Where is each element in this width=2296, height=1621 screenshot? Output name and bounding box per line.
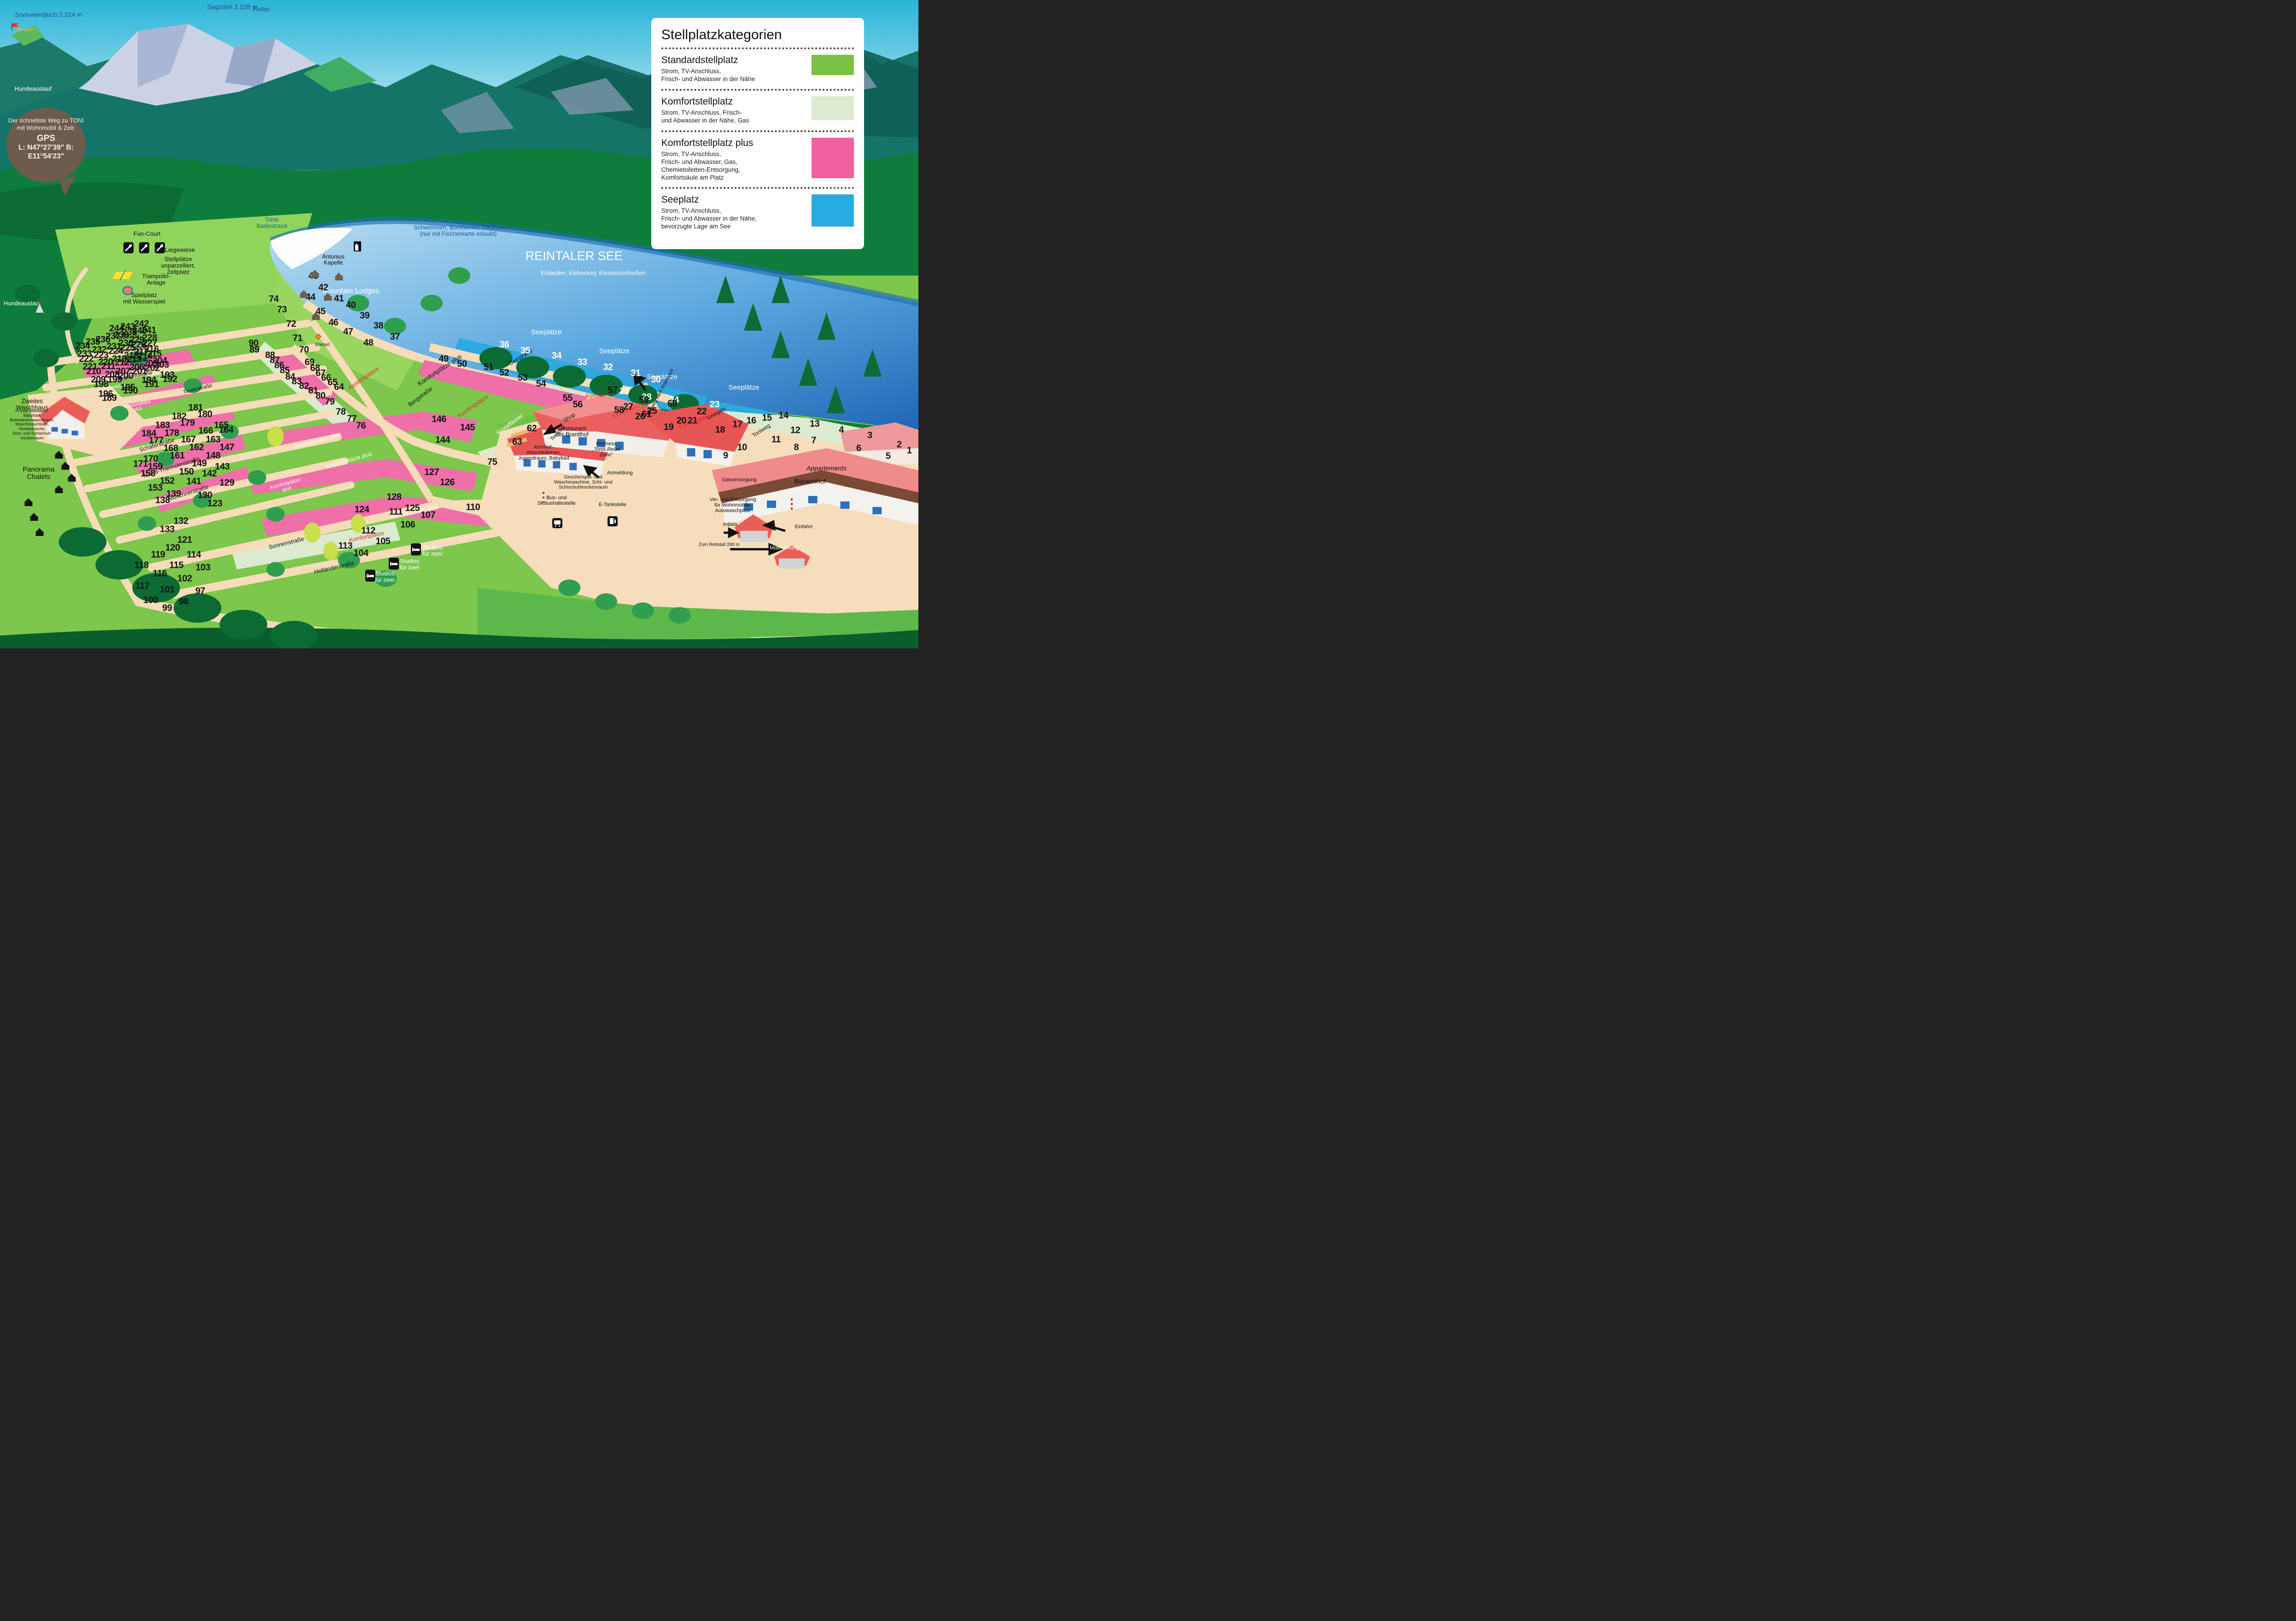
pitch-number-171: 171 bbox=[133, 459, 148, 470]
trampoline-icon bbox=[123, 275, 140, 284]
legend-panel: Stellplatzkategorien Standardstellplatz … bbox=[651, 18, 865, 249]
color-swatch-komfort-plus bbox=[812, 138, 854, 178]
pitch-number-58: 58 bbox=[614, 405, 624, 416]
pitch-number-62: 62 bbox=[527, 423, 537, 434]
map-label: Liegewiese bbox=[165, 247, 195, 253]
legend-item-standardstellplatz: Standardstellplatz Strom, TV-Anschluss, … bbox=[661, 53, 854, 85]
pitch-number-121: 121 bbox=[177, 535, 192, 545]
pitch-number-49: 49 bbox=[438, 354, 448, 365]
pitch-number-181: 181 bbox=[188, 402, 203, 413]
pitch-number-60: 60 bbox=[667, 399, 677, 409]
campground-map: Sagzahn 2.228 mRofanSonnwendjoch 2.224 m… bbox=[0, 0, 918, 648]
chalet-icon-glyph bbox=[68, 477, 76, 482]
pitch-number-99: 99 bbox=[162, 603, 172, 613]
trampoline-icon-glyph bbox=[111, 271, 134, 280]
pitch-number-7: 7 bbox=[811, 436, 816, 446]
map-label: Panorama Chalets bbox=[23, 466, 54, 481]
pitch-number-23: 23 bbox=[710, 399, 719, 410]
legend-item-name: Komfortstellplatz bbox=[661, 96, 807, 107]
map-label: Fun-Court bbox=[134, 231, 161, 237]
pitch-number-127: 127 bbox=[424, 467, 439, 478]
pitch-number-15: 15 bbox=[762, 413, 771, 424]
pitch-number-8: 8 bbox=[794, 442, 799, 453]
pitch-number-13: 13 bbox=[810, 419, 819, 429]
playground-icon bbox=[123, 286, 133, 295]
legend-item-desc: Strom, TV-Anschluss, Frisch- und Abwasse… bbox=[661, 151, 807, 182]
pitch-number-146: 146 bbox=[432, 414, 446, 425]
legend-item-desc: Strom, TV-Anschluss, Frisch- und Abwasse… bbox=[661, 109, 807, 125]
pitch-number-166: 166 bbox=[199, 426, 213, 437]
pitch-number-128: 128 bbox=[386, 492, 401, 502]
map-label: Appartements bbox=[806, 465, 847, 472]
legend-item-name: Komfortstellplatz plus bbox=[661, 138, 807, 149]
e-charging-icon-glyph bbox=[608, 516, 618, 526]
mountain-lodge-icon bbox=[324, 296, 332, 301]
pitch-number-81: 81 bbox=[308, 386, 318, 397]
pitch-number-74: 74 bbox=[269, 294, 279, 305]
map-label: Einfahrt bbox=[795, 525, 812, 530]
mountain-lodge-icon bbox=[300, 293, 308, 298]
pitch-number-141: 141 bbox=[187, 477, 201, 487]
gps-bubble: Der schnellste Weg zu TONI mit Wohnmobil… bbox=[6, 108, 86, 182]
pitch-number-72: 72 bbox=[286, 319, 296, 330]
pitch-number-105: 105 bbox=[376, 536, 391, 547]
map-label: Tonis Badestrand bbox=[257, 216, 287, 229]
pitch-number-112: 112 bbox=[361, 526, 375, 536]
map-label: Ver- und Entsorgung für Wohnmobile, Auto… bbox=[710, 497, 756, 514]
pitch-number-115: 115 bbox=[169, 560, 183, 571]
pitch-number-1: 1 bbox=[907, 445, 912, 456]
bergalm-flag-icon-glyph bbox=[12, 23, 12, 30]
pitch-number-78: 78 bbox=[336, 407, 345, 418]
pitch-number-30: 30 bbox=[651, 375, 660, 385]
pitch-number-114: 114 bbox=[187, 550, 201, 560]
pitch-number-144: 144 bbox=[435, 435, 450, 446]
pitch-number-47: 47 bbox=[343, 327, 353, 337]
mountain-lodge-icon-glyph bbox=[300, 293, 308, 298]
map-label: Seeplätze bbox=[729, 384, 759, 391]
pitch-number-51: 51 bbox=[484, 362, 493, 373]
map-label: Rofan bbox=[253, 6, 270, 12]
chalet-icon bbox=[68, 477, 76, 482]
pitch-number-50: 50 bbox=[457, 359, 467, 370]
pitch-number-195: 195 bbox=[120, 382, 135, 393]
pitch-number-110: 110 bbox=[466, 502, 480, 513]
pitch-number-18: 18 bbox=[715, 425, 725, 435]
mountain-lodge-icon-glyph bbox=[324, 296, 332, 301]
pitch-number-98: 98 bbox=[179, 596, 188, 607]
pitch-number-35: 35 bbox=[520, 345, 530, 356]
pitch-number-149: 149 bbox=[192, 458, 207, 469]
funcourt-tennis-icon-glyph bbox=[123, 242, 134, 253]
pitch-number-36: 36 bbox=[499, 340, 509, 350]
studio-bed-icon-glyph bbox=[411, 543, 421, 555]
pitch-number-124: 124 bbox=[355, 504, 369, 515]
pitch-number-193: 193 bbox=[160, 370, 175, 381]
pitch-number-53: 53 bbox=[518, 373, 527, 383]
pitch-number-32: 32 bbox=[603, 362, 613, 373]
pitch-number-70: 70 bbox=[299, 345, 309, 356]
barrier-icon-glyph bbox=[543, 492, 544, 504]
chalet-icon-glyph bbox=[30, 516, 38, 521]
color-swatch-standard bbox=[812, 55, 854, 75]
pitch-number-90: 90 bbox=[249, 338, 258, 349]
map-label: Wellness „Tonis Relax Zone“ bbox=[592, 442, 620, 458]
bergalm-flag-icon bbox=[12, 23, 12, 30]
pitch-number-55: 55 bbox=[563, 393, 573, 403]
pitch-number-117: 117 bbox=[135, 581, 150, 591]
chalet-icon-glyph bbox=[24, 501, 32, 506]
tipi-icon bbox=[35, 303, 44, 313]
chalet-icon-glyph bbox=[55, 489, 63, 493]
pitch-number-143: 143 bbox=[215, 461, 230, 472]
pitch-number-145: 145 bbox=[460, 423, 475, 433]
pitch-number-40: 40 bbox=[346, 300, 356, 311]
pitch-number-33: 33 bbox=[578, 357, 587, 368]
pitch-number-63: 63 bbox=[512, 437, 522, 448]
chalet-icon bbox=[55, 489, 63, 493]
pitch-number-46: 46 bbox=[328, 318, 338, 328]
mountain-lodge-icon-glyph bbox=[312, 315, 320, 320]
chalet-icon bbox=[55, 454, 63, 459]
gps-coords: L: N47°27'39" B: E11°54'23" bbox=[6, 144, 86, 161]
pitch-number-184: 184 bbox=[141, 428, 156, 439]
funcourt-soccer-icon bbox=[155, 242, 165, 253]
mountain-lodge-icon-glyph bbox=[335, 276, 343, 280]
pitch-number-71: 71 bbox=[292, 333, 302, 344]
map-label: Restaurant der Brantlhof bbox=[555, 426, 589, 438]
gps-intro: Der schnellste Weg zu TONI mit Wohnmobil… bbox=[6, 117, 86, 132]
pitch-number-73: 73 bbox=[277, 305, 287, 315]
pitch-number-17: 17 bbox=[733, 420, 742, 430]
mountain-lodge-icon bbox=[312, 315, 320, 320]
map-label: Komfort bbox=[586, 393, 604, 399]
map-label: Komfort- Waschkabinen, Jugendraum, Babyb… bbox=[518, 445, 569, 461]
pitch-number-2: 2 bbox=[897, 439, 902, 450]
chalet-icon bbox=[24, 501, 32, 506]
map-label: Bauernhof bbox=[794, 478, 826, 485]
funcourt-tennis-icon bbox=[123, 242, 134, 253]
studio-bed-icon bbox=[389, 558, 399, 570]
pitch-number-244: 244 bbox=[109, 323, 124, 334]
legend-item-komfortstellplatz: Komfortstellplatz Strom, TV-Anschluss, F… bbox=[661, 94, 854, 127]
pitch-number-69: 69 bbox=[304, 357, 314, 368]
map-label: Hundeauslauf bbox=[15, 86, 52, 92]
pitch-number-54: 54 bbox=[536, 379, 546, 389]
pitch-number-14: 14 bbox=[778, 410, 788, 421]
pitch-number-196: 196 bbox=[98, 389, 113, 400]
chalet-icon-glyph bbox=[55, 454, 63, 459]
pitch-number-147: 147 bbox=[220, 442, 234, 453]
pitch-number-39: 39 bbox=[360, 310, 369, 321]
pitch-number-165: 165 bbox=[214, 420, 229, 431]
pitch-number-38: 38 bbox=[374, 321, 383, 332]
pitch-number-100: 100 bbox=[143, 595, 158, 606]
pitch-number-126: 126 bbox=[440, 477, 455, 488]
pitch-number-37: 37 bbox=[390, 332, 400, 343]
map-label: Studios für zwei bbox=[423, 545, 443, 557]
pitch-number-150: 150 bbox=[179, 467, 194, 478]
chalet-icon bbox=[35, 531, 43, 536]
map-label: Marterl bbox=[315, 343, 329, 348]
pitch-number-27: 27 bbox=[623, 402, 633, 413]
pitch-number-167: 167 bbox=[181, 434, 196, 445]
pitch-number-34: 34 bbox=[552, 350, 561, 361]
pitch-number-10: 10 bbox=[737, 442, 747, 453]
color-swatch-seeplatz bbox=[812, 194, 854, 227]
legend-item-desc: Strom, TV-Anschluss, Frisch- und Abwasse… bbox=[661, 207, 807, 231]
pitch-number-103: 103 bbox=[196, 563, 210, 573]
chalet-icon bbox=[61, 465, 69, 470]
pitch-number-6: 6 bbox=[856, 443, 861, 454]
gps-label: GPS bbox=[6, 134, 86, 144]
map-label: Trampolin- Anlage bbox=[142, 273, 170, 286]
map-label: Bergalm bbox=[16, 27, 35, 33]
pitch-number-20: 20 bbox=[677, 415, 686, 426]
pitch-number-75: 75 bbox=[487, 457, 497, 467]
pitch-number-16: 16 bbox=[746, 415, 756, 426]
map-label: Gasversorgung bbox=[722, 478, 757, 483]
funcourt-soccer-icon-glyph bbox=[155, 242, 165, 253]
pitch-number-5: 5 bbox=[886, 451, 891, 462]
chalet-icon-glyph bbox=[61, 465, 69, 470]
pitch-number-106: 106 bbox=[400, 520, 415, 531]
chapel-icon bbox=[354, 241, 361, 251]
barrier-icon bbox=[791, 498, 793, 510]
studio-bed-icon-glyph bbox=[389, 558, 399, 570]
divider bbox=[661, 47, 854, 49]
tipi-icon-glyph bbox=[35, 303, 44, 313]
mountain-lodge-icon bbox=[335, 276, 343, 280]
pitch-number-56: 56 bbox=[573, 399, 583, 410]
pitch-number-119: 119 bbox=[151, 550, 165, 560]
pitch-number-242: 242 bbox=[134, 319, 149, 330]
pitch-number-3: 3 bbox=[867, 431, 872, 441]
studio-bed-icon bbox=[411, 543, 421, 555]
pitch-number-21: 21 bbox=[688, 415, 697, 426]
divider bbox=[661, 187, 854, 189]
map-label: Eislaufen, Eishockey, Eisstockschießen bbox=[541, 270, 645, 276]
map-label: Antonius Kapelle bbox=[322, 254, 345, 266]
pitch-number-61: 61 bbox=[642, 409, 651, 420]
map-label: Imbiss bbox=[723, 523, 737, 528]
funcourt-basketball-icon bbox=[139, 242, 149, 253]
chapel-icon-glyph bbox=[354, 241, 361, 251]
legend-item-komfortstellplatz-plus: Komfortstellplatz plus Strom, TV-Anschlu… bbox=[661, 136, 854, 184]
pitch-number-104: 104 bbox=[354, 548, 368, 559]
bus-stop-icon bbox=[552, 518, 562, 528]
pitch-number-9: 9 bbox=[723, 450, 728, 461]
pitch-number-111: 111 bbox=[389, 507, 403, 518]
legend-item-seeplatz: Seeplatz Strom, TV-Anschluss, Frisch- un… bbox=[661, 192, 854, 233]
pitch-number-118: 118 bbox=[134, 560, 149, 571]
mountain-lodge-icon-glyph bbox=[311, 273, 319, 278]
barrier-icon-glyph bbox=[791, 498, 793, 510]
pitch-number-12: 12 bbox=[790, 425, 800, 436]
funcourt-basketball-icon-glyph bbox=[139, 242, 149, 253]
map-label: Studios für zwei bbox=[375, 571, 395, 583]
pitch-number-48: 48 bbox=[363, 338, 373, 348]
pitch-number-22: 22 bbox=[697, 407, 707, 417]
legend-title: Stellplatzkategorien bbox=[661, 27, 854, 43]
pitch-number-133: 133 bbox=[160, 525, 175, 535]
pitch-number-29: 29 bbox=[619, 386, 629, 397]
pitch-number-113: 113 bbox=[338, 541, 352, 551]
divider bbox=[661, 89, 854, 91]
legend-item-desc: Strom, TV-Anschluss, Frisch- und Abwasse… bbox=[661, 68, 807, 83]
chalet-icon-glyph bbox=[35, 531, 43, 536]
pitch-number-102: 102 bbox=[177, 574, 192, 584]
map-label: Zum Reitstall 200 m bbox=[699, 543, 740, 548]
pitch-number-11: 11 bbox=[771, 434, 781, 445]
marterl-icon bbox=[318, 337, 323, 341]
playground-icon-glyph bbox=[123, 286, 133, 295]
pitch-number-42: 42 bbox=[318, 283, 328, 293]
pitch-number-153: 153 bbox=[148, 483, 163, 494]
map-label: Studios für zwei bbox=[400, 559, 420, 571]
map-label: Sagzahn 2.228 m bbox=[207, 4, 258, 11]
pitch-number-101: 101 bbox=[160, 585, 175, 595]
map-label: REINTALER SEE bbox=[526, 250, 623, 263]
map-label: Sonnwendjoch 2.224 m bbox=[15, 12, 82, 18]
pitch-number-129: 129 bbox=[220, 478, 234, 488]
map-label: Mülltrennung bbox=[770, 546, 799, 551]
color-swatch-komfort bbox=[812, 96, 854, 120]
pitch-number-4: 4 bbox=[839, 425, 844, 435]
map-label: Seeplätze bbox=[531, 329, 562, 336]
map-label: E-Tankstelle bbox=[599, 502, 626, 508]
pitch-number-31: 31 bbox=[631, 368, 640, 379]
e-charging-icon bbox=[608, 516, 618, 526]
pitch-number-107: 107 bbox=[421, 510, 435, 521]
pitch-number-41: 41 bbox=[334, 294, 344, 304]
studio-bed-icon bbox=[365, 570, 375, 582]
map-label: Private Mietbäder, Babybad, Behindertenw… bbox=[10, 409, 54, 440]
divider bbox=[661, 130, 854, 132]
pitch-number-139: 139 bbox=[166, 489, 181, 499]
legend-item-name: Seeplatz bbox=[661, 194, 807, 205]
bus-stop-icon-glyph bbox=[552, 518, 562, 528]
pitch-number-19: 19 bbox=[664, 422, 673, 432]
studio-bed-icon-glyph bbox=[365, 570, 375, 582]
pitch-number-194: 194 bbox=[141, 375, 156, 386]
map-label: Schwimmen, Bootfahren, Fischen (nur mit … bbox=[414, 224, 503, 237]
pitch-number-79: 79 bbox=[325, 397, 334, 407]
pitch-number-76: 76 bbox=[356, 421, 366, 431]
pitch-number-148: 148 bbox=[206, 450, 221, 461]
pitch-number-52: 52 bbox=[499, 367, 509, 378]
pitch-number-183: 183 bbox=[155, 420, 170, 431]
pitch-number-168: 168 bbox=[164, 443, 178, 454]
pitch-number-132: 132 bbox=[174, 516, 188, 527]
pitch-number-77: 77 bbox=[347, 414, 356, 424]
pitch-number-59: 59 bbox=[639, 395, 648, 405]
barrier-icon bbox=[543, 492, 544, 504]
pitch-number-125: 125 bbox=[405, 503, 420, 513]
pitch-number-88: 88 bbox=[265, 350, 275, 361]
map-label: Geschirrspül- und Waschmaschine, Schi- u… bbox=[554, 475, 613, 490]
chalet-icon bbox=[30, 516, 38, 521]
pitch-number-130: 130 bbox=[198, 490, 212, 501]
pitch-number-57: 57 bbox=[608, 385, 617, 396]
map-label: Seeplätze bbox=[599, 348, 630, 355]
mountain-lodge-icon bbox=[311, 273, 319, 278]
pitch-number-182: 182 bbox=[172, 412, 187, 422]
legend-item-name: Standardstellplatz bbox=[661, 55, 807, 66]
pitch-number-116: 116 bbox=[153, 569, 167, 579]
pitch-number-97: 97 bbox=[195, 586, 205, 597]
